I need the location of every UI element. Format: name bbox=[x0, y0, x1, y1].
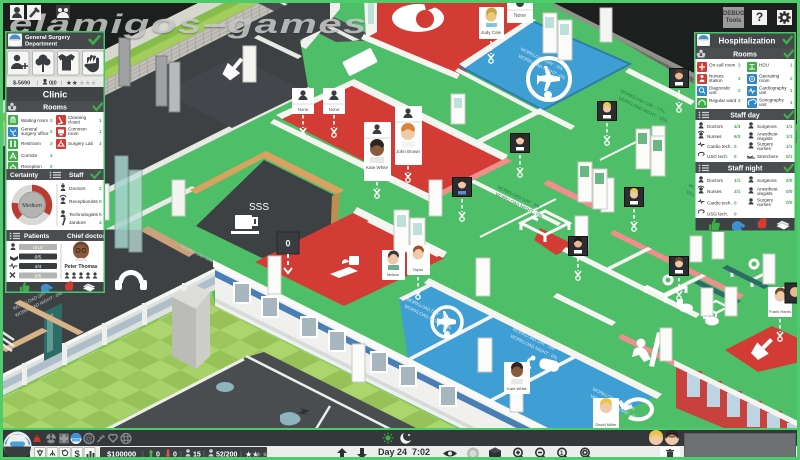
svg-text:John Brown: John Brown bbox=[396, 149, 420, 154]
svg-text:1: 1 bbox=[99, 118, 102, 123]
svg-text:Reception: Reception bbox=[21, 164, 42, 169]
svg-text:0: 0 bbox=[156, 452, 160, 459]
svg-text:Receptionists: Receptionists bbox=[69, 199, 98, 205]
svg-text:Certainty: Certainty bbox=[10, 172, 39, 179]
svg-text:$: $ bbox=[75, 449, 81, 460]
svg-text:0: 0 bbox=[285, 239, 290, 249]
svg-text:Cardio tech.: Cardio tech. bbox=[707, 144, 732, 149]
svg-text:|: | bbox=[180, 452, 182, 459]
svg-text:On-call room: On-call room bbox=[709, 63, 735, 68]
svg-text:Waiting room: Waiting room bbox=[21, 118, 48, 123]
svg-text:★★★: ★★★ bbox=[255, 450, 269, 459]
svg-text:David Miller: David Miller bbox=[596, 422, 618, 427]
svg-text:Janitors: Janitors bbox=[69, 220, 86, 226]
svg-text:★★★: ★★★ bbox=[79, 79, 97, 87]
svg-text:6/3: 6/3 bbox=[734, 134, 741, 139]
svg-text:|: | bbox=[240, 452, 242, 459]
svg-text:1/1: 1/1 bbox=[786, 124, 793, 129]
svg-text:0: 0 bbox=[734, 201, 737, 206]
svg-text:0/0: 0/0 bbox=[786, 178, 793, 183]
svg-text:Surgery Lab: Surgery Lab bbox=[68, 141, 93, 146]
svg-text:Surgeons: Surgeons bbox=[757, 178, 777, 183]
svg-text:Kate White: Kate White bbox=[366, 165, 389, 170]
svg-text:★★: ★★ bbox=[66, 79, 78, 87]
svg-text:2: 2 bbox=[50, 118, 53, 123]
svg-text:Medium: Medium bbox=[22, 203, 42, 209]
svg-text:Nurses: Nurses bbox=[707, 134, 722, 139]
svg-text:2/1: 2/1 bbox=[734, 189, 741, 194]
svg-text:unit: unit bbox=[709, 90, 717, 95]
svg-text:USG tech.: USG tech. bbox=[707, 212, 728, 217]
svg-text:Judy Cole: Judy Cole bbox=[481, 30, 502, 35]
svg-text:Technologists: Technologists bbox=[69, 212, 99, 218]
svg-text:0: 0 bbox=[173, 452, 177, 459]
svg-text:nurses: nurses bbox=[757, 146, 771, 151]
svg-text:|: | bbox=[61, 81, 62, 87]
svg-text:1/1: 1/1 bbox=[734, 178, 741, 183]
svg-text:Regular ward: Regular ward bbox=[709, 98, 737, 103]
svg-text:2: 2 bbox=[99, 186, 102, 192]
svg-text:3: 3 bbox=[50, 141, 53, 146]
svg-text:Cardio tech.: Cardio tech. bbox=[707, 201, 732, 206]
svg-text:Stretchers: Stretchers bbox=[757, 154, 779, 159]
svg-text:Clinic: Clinic bbox=[43, 90, 68, 100]
svg-text:0: 0 bbox=[734, 212, 737, 217]
svg-text:Rooms: Rooms bbox=[733, 52, 757, 59]
svg-text:4: 4 bbox=[99, 220, 102, 226]
svg-text:0/5: 0/5 bbox=[35, 273, 42, 279]
svg-text:2: 2 bbox=[790, 76, 793, 81]
svg-text:15: 15 bbox=[193, 452, 201, 459]
svg-text:3: 3 bbox=[738, 98, 741, 103]
svg-text:0: 0 bbox=[50, 164, 53, 169]
svg-text:@: @ bbox=[85, 436, 92, 443]
svg-text:ologists: ologists bbox=[757, 136, 773, 141]
svg-text:0/5: 0/5 bbox=[35, 254, 42, 260]
svg-text:unit: unit bbox=[759, 90, 767, 95]
svg-text:2: 2 bbox=[738, 63, 741, 68]
svg-text:Doctors: Doctors bbox=[69, 186, 86, 192]
svg-text:USG tech.: USG tech. bbox=[707, 154, 728, 159]
svg-text:Doctors: Doctors bbox=[707, 178, 724, 183]
svg-text:1: 1 bbox=[790, 88, 793, 93]
svg-text:Surgeons: Surgeons bbox=[757, 124, 777, 129]
svg-text:Nelson: Nelson bbox=[387, 272, 399, 277]
svg-text:General Surgery: General Surgery bbox=[25, 35, 71, 41]
svg-text:2: 2 bbox=[738, 88, 741, 93]
svg-text:0|0: 0|0 bbox=[49, 81, 57, 87]
svg-text:1/1: 1/1 bbox=[786, 134, 793, 139]
svg-text:ologists: ologists bbox=[757, 191, 773, 196]
svg-text:52/200: 52/200 bbox=[216, 452, 238, 459]
svg-text:None: None bbox=[514, 13, 526, 19]
svg-text:Staff night: Staff night bbox=[728, 166, 763, 173]
svg-text:Frank Harris: Frank Harris bbox=[769, 309, 791, 314]
svg-text:2: 2 bbox=[738, 76, 741, 81]
svg-text:1: 1 bbox=[790, 63, 793, 68]
svg-text:|: | bbox=[203, 452, 205, 459]
svg-text:Kate White: Kate White bbox=[507, 386, 527, 391]
svg-text:0/1: 0/1 bbox=[786, 154, 793, 159]
svg-text:4/4: 4/4 bbox=[35, 264, 42, 270]
svg-text:0: 0 bbox=[734, 154, 737, 159]
svg-text:0: 0 bbox=[99, 199, 102, 205]
svg-text:|: | bbox=[142, 452, 144, 459]
svg-text:Peter Thomas: Peter Thomas bbox=[64, 264, 97, 270]
svg-text:Restroom: Restroom bbox=[21, 141, 41, 146]
svg-text:None: None bbox=[329, 107, 340, 112]
svg-text:Doctors: Doctors bbox=[707, 124, 724, 129]
svg-text:$-5690: $-5690 bbox=[13, 81, 30, 87]
svg-text:Rooms: Rooms bbox=[43, 105, 67, 112]
svg-text:5: 5 bbox=[99, 212, 102, 218]
svg-text:unit: unit bbox=[759, 102, 767, 107]
svg-text:Patients: Patients bbox=[24, 233, 50, 240]
svg-text:1: 1 bbox=[99, 129, 102, 134]
svg-text:station: station bbox=[709, 78, 723, 83]
svg-text:Taylor: Taylor bbox=[413, 267, 424, 272]
svg-text:Staff day: Staff day bbox=[730, 113, 760, 120]
svg-text:Hospitalization: Hospitalization bbox=[719, 37, 776, 46]
svg-text:|: | bbox=[37, 81, 38, 87]
svg-text:surgery office: surgery office bbox=[21, 131, 49, 136]
svg-text:2: 2 bbox=[50, 129, 53, 134]
svg-text:None: None bbox=[298, 107, 309, 112]
svg-text:1/1: 1/1 bbox=[786, 144, 793, 149]
svg-text:4: 4 bbox=[50, 153, 53, 158]
svg-text:Chief doctor: Chief doctor bbox=[67, 233, 105, 240]
svg-text:nurses: nurses bbox=[757, 202, 771, 207]
svg-text:0/0: 0/0 bbox=[786, 189, 793, 194]
svg-text:room: room bbox=[68, 131, 79, 136]
svg-text:Corridor: Corridor bbox=[21, 153, 38, 158]
svg-text:0/0: 0/0 bbox=[786, 200, 793, 205]
svg-text:Nurses: Nurses bbox=[707, 189, 722, 194]
svg-text:$100000: $100000 bbox=[107, 450, 136, 459]
svg-text:Department: Department bbox=[25, 42, 57, 48]
svg-text:closet: closet bbox=[68, 120, 81, 125]
svg-text:0: 0 bbox=[734, 144, 737, 149]
svg-text:4/3: 4/3 bbox=[734, 124, 741, 129]
svg-text:0/10: 0/10 bbox=[33, 245, 43, 251]
svg-text:room: room bbox=[759, 78, 770, 83]
svg-text:1: 1 bbox=[99, 141, 102, 146]
svg-text:Staff: Staff bbox=[69, 172, 84, 179]
svg-text:HDU: HDU bbox=[759, 63, 769, 68]
svg-text:1: 1 bbox=[790, 100, 793, 105]
